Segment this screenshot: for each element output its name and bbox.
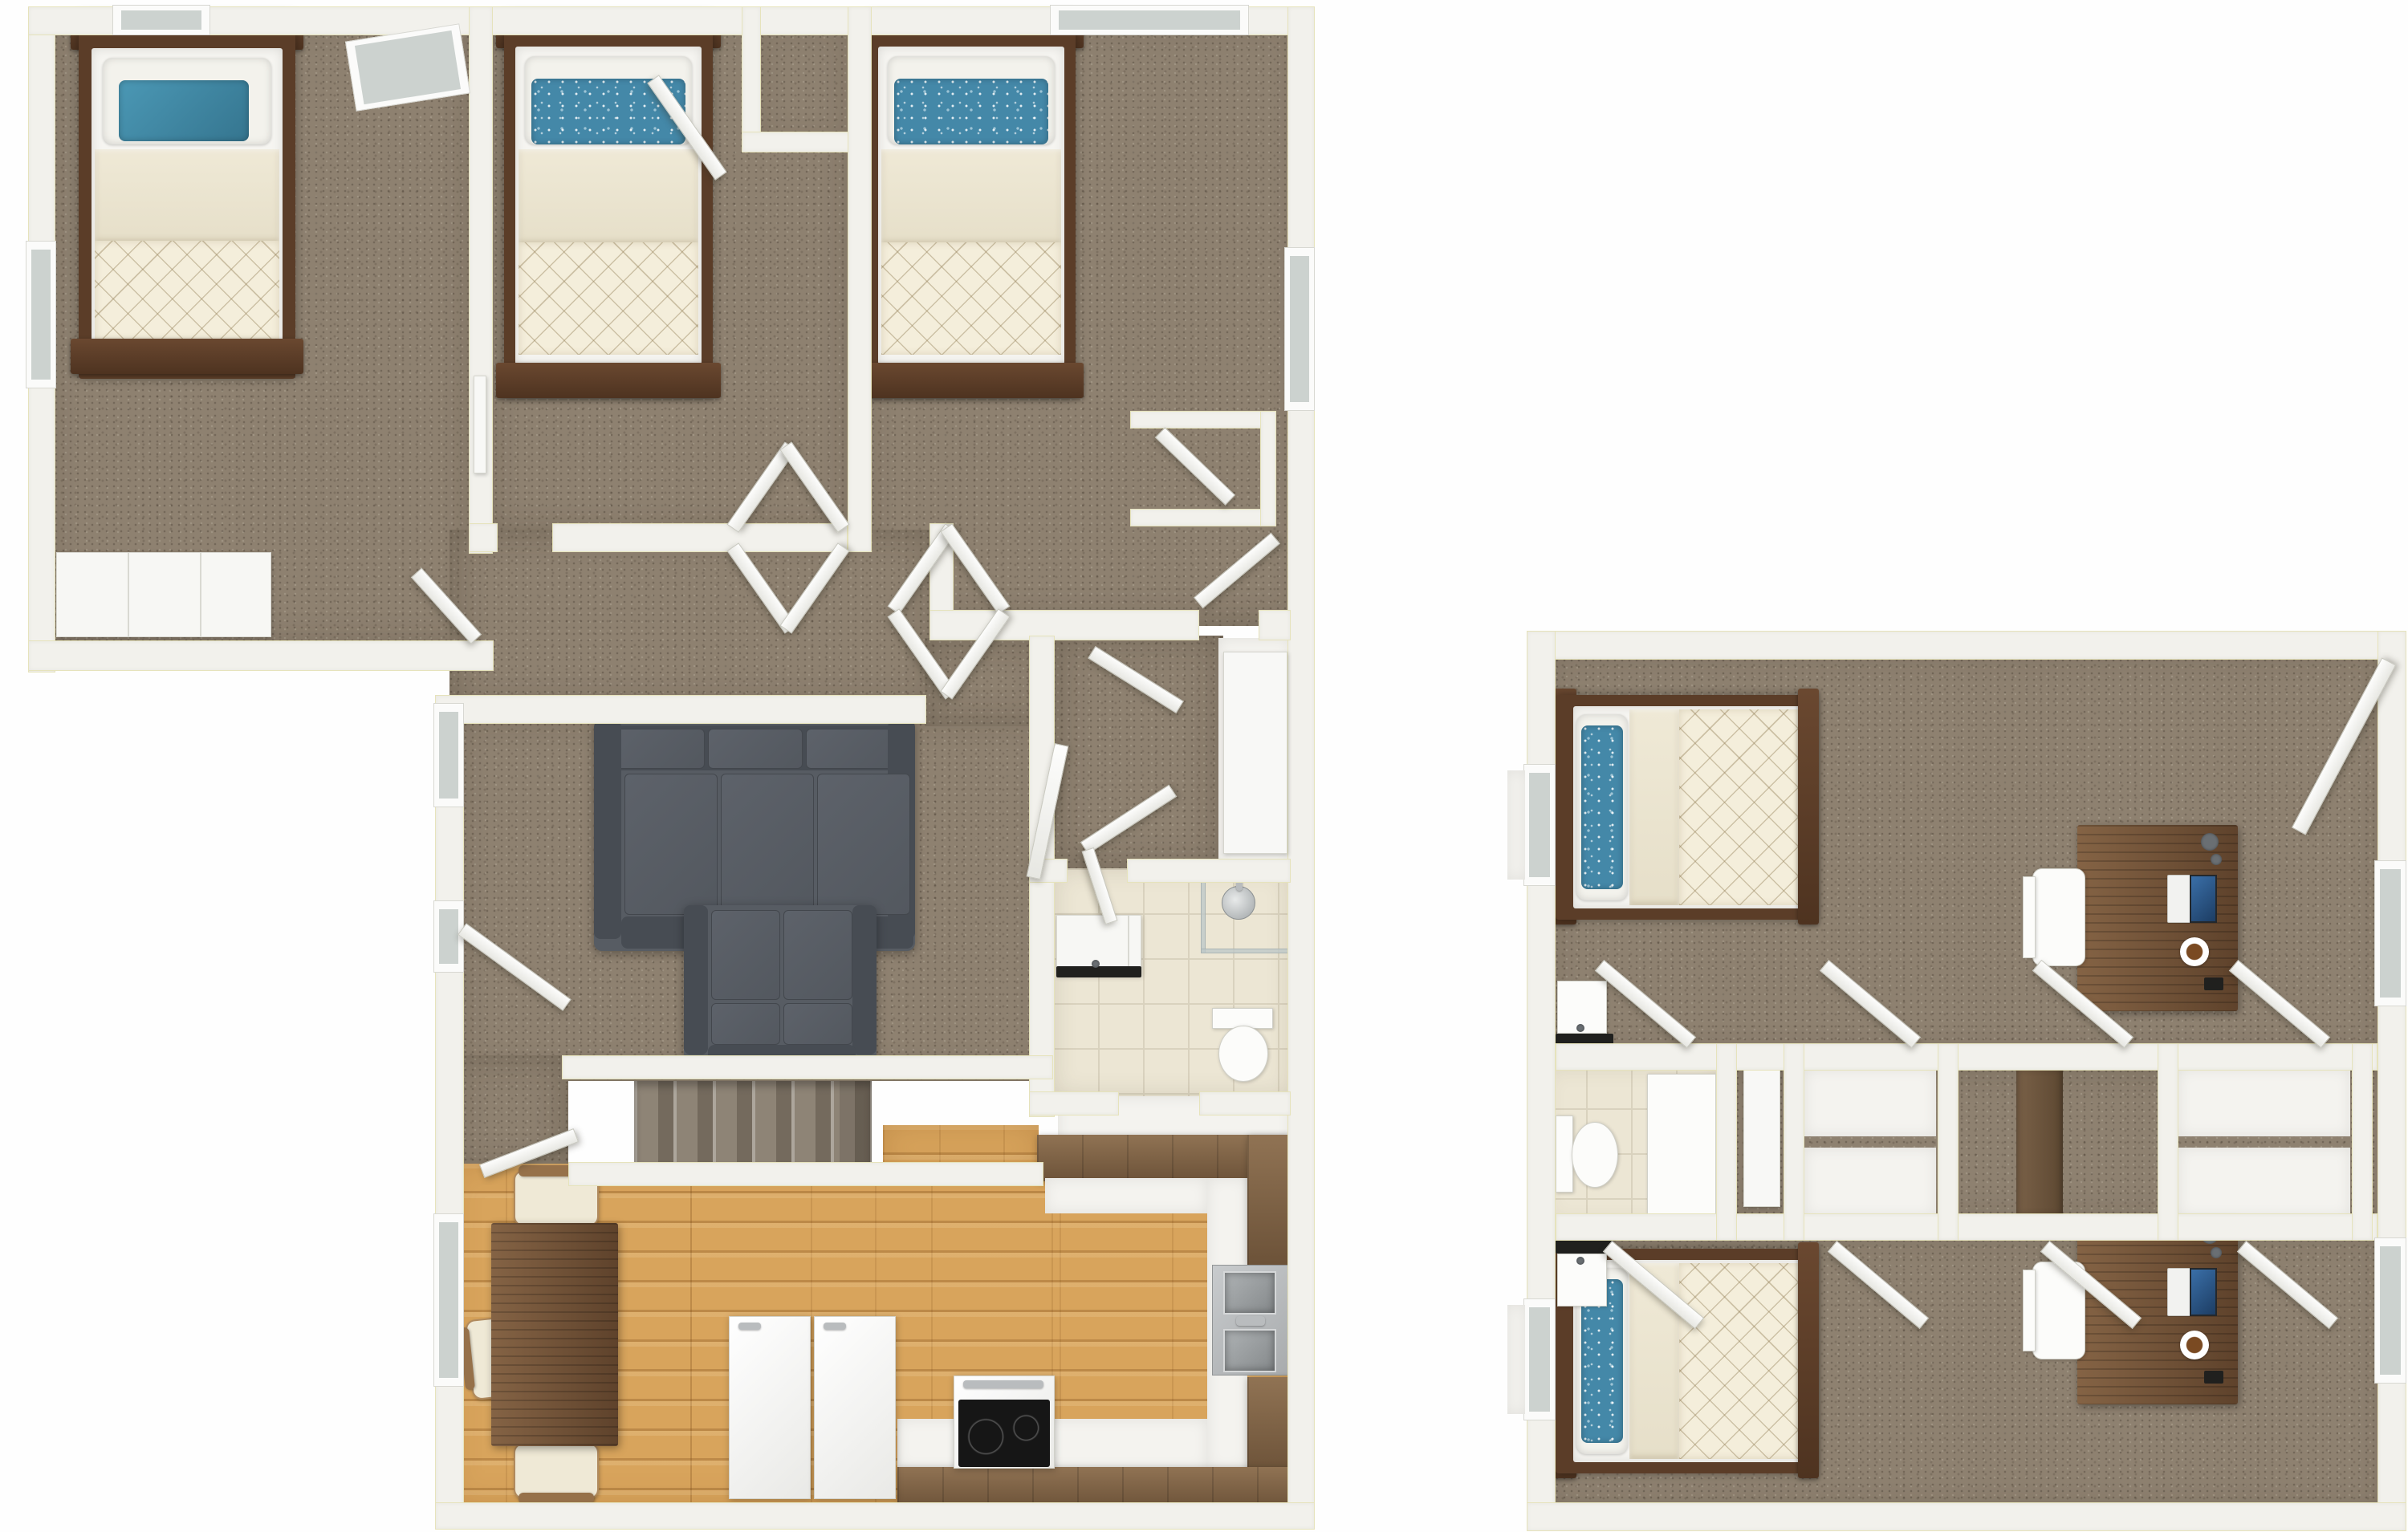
door-bedroom2-flat (474, 376, 486, 473)
wall-b-right (2377, 631, 2406, 1531)
wall-a-half-ledge-lower (568, 1162, 1043, 1186)
desk-2-speaker-small (2211, 1247, 2222, 1258)
wall-a-bedroom3-bottom-left (929, 610, 1199, 640)
loveseat-back-cushion-2 (783, 910, 852, 1000)
door-foyer-closet-flat (1223, 652, 1287, 854)
bedB1-footboard (1798, 689, 1819, 924)
bedB1-quilt (1679, 709, 1800, 905)
kitchen-counter-right-upper (1247, 1135, 1291, 1265)
desk-1-coffee (2180, 937, 2209, 966)
sofa-back-cushion-2 (708, 729, 803, 769)
wall-b-divider-2 (1784, 1043, 1804, 1241)
window-b-sill-left-bottom (1507, 1305, 1525, 1414)
staircase (634, 1081, 872, 1164)
bathroom-a-vanity-counter (1056, 966, 1141, 977)
carpet-hallway (449, 530, 939, 710)
wall-a-bottom (435, 1502, 1315, 1530)
wall-a-bath-bottom-right (1199, 1091, 1291, 1115)
staircase-landing-shade (840, 1081, 872, 1164)
kitchen-sink-basin-1 (1223, 1271, 1276, 1315)
unitb-closet-shelf-1a (1804, 1069, 1936, 1136)
wall-b-divider-1 (1716, 1043, 1737, 1241)
bed3-quilt (881, 242, 1061, 355)
desk-2-chair-back (2023, 1270, 2036, 1351)
loveseat-back-cushion-1 (711, 910, 780, 1000)
wall-a-bedroom1-bottom (28, 640, 494, 671)
wall-a-bath-bottom-left (1029, 1091, 1119, 1115)
wall-a-left-lower (435, 695, 464, 1530)
wall-b-divider-5 (2352, 1043, 2373, 1241)
bed2-footboard (496, 363, 721, 398)
bed2-quilt (519, 242, 698, 355)
carpet-foyer (1053, 636, 1223, 870)
wall-b-mid-top (1556, 1043, 2377, 1071)
wall-a-closet2-top (1130, 411, 1276, 429)
shower-glass-horizontal (1201, 949, 1291, 953)
wall-a-bedroom3-bottom-right (1259, 610, 1291, 640)
sofa-seat-cushion-1 (624, 774, 718, 915)
sofa-back-cushion-3 (806, 729, 901, 769)
window-bedroom1-left (26, 241, 56, 388)
sofa-armrest-left (594, 721, 621, 939)
dresser-bedroom-1 (56, 552, 271, 637)
loveseat-seat-cushion-2 (783, 1003, 852, 1045)
wall-a-bedroom2-bottom (552, 523, 848, 552)
window-b-sill-left-top (1507, 770, 1525, 880)
window-kitchen-left (433, 1213, 464, 1387)
desk-1-speaker-large (2201, 833, 2219, 851)
bathroom-a-vanity-faucet (1092, 960, 1100, 968)
shower-glass-vertical (1201, 872, 1206, 953)
wall-a-living-top (435, 695, 926, 724)
shower-head (1222, 886, 1255, 920)
wall-a-foyer-bath-right (1127, 859, 1291, 883)
bedB2-quilt (1679, 1263, 1800, 1459)
desk-1-phone (2204, 977, 2223, 990)
bed2-blanket (519, 149, 698, 244)
wall-a-closet2-right (1260, 411, 1276, 526)
window-bedroom3-right (1284, 247, 1315, 411)
kitchen-countertop-top (1045, 1178, 1207, 1213)
window-b-left-top (1523, 764, 1556, 886)
dryer (814, 1316, 896, 1499)
bed3-footboard (859, 363, 1084, 398)
sofa-seat-cushion-2 (721, 774, 814, 915)
wall-b-divider-3 (1938, 1043, 1959, 1241)
bedB1-floral-pillow (1581, 725, 1623, 889)
bed1-footboard (71, 339, 303, 374)
window-living-left-lower (433, 900, 464, 973)
wall-a-right (1287, 6, 1315, 1530)
desk-1-speaker-small (2211, 854, 2222, 865)
unitb-toilet-bowl (1572, 1122, 1618, 1188)
wall-a-closet2-bottom (1130, 509, 1276, 526)
desk-1-laptop-screen (2190, 875, 2217, 923)
window-b-right-top (2374, 860, 2406, 1006)
bed1-quilt (95, 241, 279, 340)
washer (729, 1316, 811, 1499)
window-living-left-upper (433, 703, 464, 807)
wall-b-top (1527, 631, 2406, 660)
loveseat-armrest-right (852, 905, 877, 1055)
desk-2-phone (2204, 1371, 2223, 1384)
wall-a-bedroom2-bedroom3 (848, 6, 872, 552)
window-b-right-bottom (2374, 1237, 2406, 1384)
floor-plan-image (0, 0, 2408, 1532)
unitb-closet-shelf-1b (1804, 1148, 1936, 1217)
dryer-handle (824, 1323, 846, 1330)
loveseat-seat-cushion-1 (711, 1003, 780, 1045)
wall-a-half-ledge-upper (562, 1055, 1053, 1079)
unitb-shower-pan (1647, 1074, 1716, 1220)
kitchen-counter-right-lower (1247, 1377, 1291, 1473)
toilet-a-bowl (1218, 1026, 1268, 1082)
loveseat-armrest-left (684, 905, 708, 1055)
bedB1-blanket (1629, 709, 1679, 905)
wall-b-bottom (1527, 1502, 2406, 1531)
kitchen-sink-basin-2 (1223, 1329, 1276, 1372)
stove-cooktop (958, 1400, 1050, 1467)
kitchen-sink-faucet (1236, 1316, 1265, 1326)
bed1-accent-pillow (119, 80, 249, 141)
unitb-sink-top-faucet (1576, 1024, 1584, 1032)
bed3-floral-pillow (894, 79, 1048, 144)
unitb-door-flat (1743, 1069, 1780, 1207)
wall-a-closet1-left (742, 6, 761, 151)
dining-table (491, 1223, 618, 1446)
unitb-toilet-tank (1556, 1115, 1573, 1193)
desk-2-coffee (2180, 1331, 2209, 1359)
sofa-seat-cushion-3 (817, 774, 910, 915)
unitb-dark-doorway (2016, 1067, 2063, 1217)
desk-1-chair (2032, 868, 2085, 966)
window-bedroom1-top (112, 5, 210, 35)
unitb-sink-bottom-faucet (1576, 1257, 1584, 1265)
stove-handle (963, 1380, 1043, 1388)
window-bedroom3-top (1050, 5, 1249, 35)
bedB2-footboard (1798, 1242, 1819, 1478)
unitb-closet-shelf-2b (2178, 1148, 2350, 1217)
sofa-back-cushion-1 (610, 729, 705, 769)
window-b-left-bottom (1523, 1298, 1556, 1420)
desk-2-laptop-screen (2190, 1268, 2217, 1316)
bed1-blanket (95, 149, 279, 242)
wall-b-divider-4 (2158, 1043, 2178, 1241)
dining-chair-bottom (514, 1443, 599, 1499)
desk-1-chair-back (2023, 876, 2036, 958)
unitb-closet-shelf-2a (2178, 1069, 2350, 1136)
washer-handle (738, 1323, 761, 1330)
bed3-blanket (881, 149, 1061, 244)
wall-b-mid-bottom (1556, 1213, 2377, 1241)
wall-a-bedroom2-bottom-stub (469, 523, 498, 552)
